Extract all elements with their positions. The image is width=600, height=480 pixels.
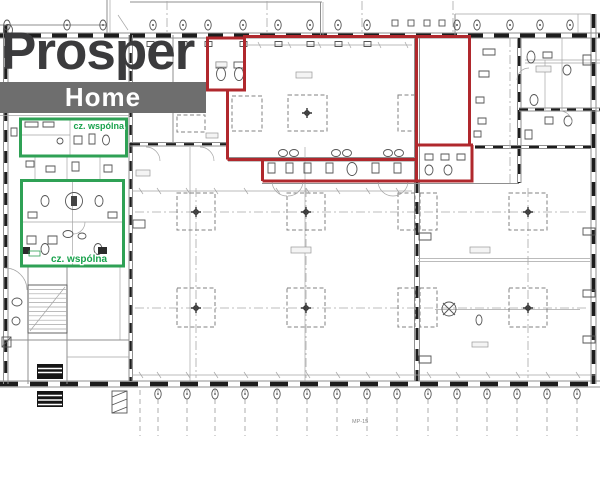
- entrance-mats: [37, 364, 127, 413]
- logo-brand-name: Prosper: [1, 24, 194, 80]
- floorplan-screenshot: cz. wspólna cz. wspólna MP-15 Prosper Ho…: [0, 0, 600, 480]
- red-unit-outline: [208, 36, 474, 182]
- common-area-label-bottom: cz. wspólna: [51, 254, 108, 265]
- skylight-squares: [177, 95, 547, 327]
- column-markers: [191, 108, 533, 313]
- logo-banner: Home: [0, 82, 206, 113]
- common-area-label-top: cz. wspólna: [73, 121, 125, 131]
- plan-code-label: MP-15: [352, 419, 368, 425]
- staircase: [28, 285, 67, 333]
- logo-banner-text: Home: [65, 82, 141, 113]
